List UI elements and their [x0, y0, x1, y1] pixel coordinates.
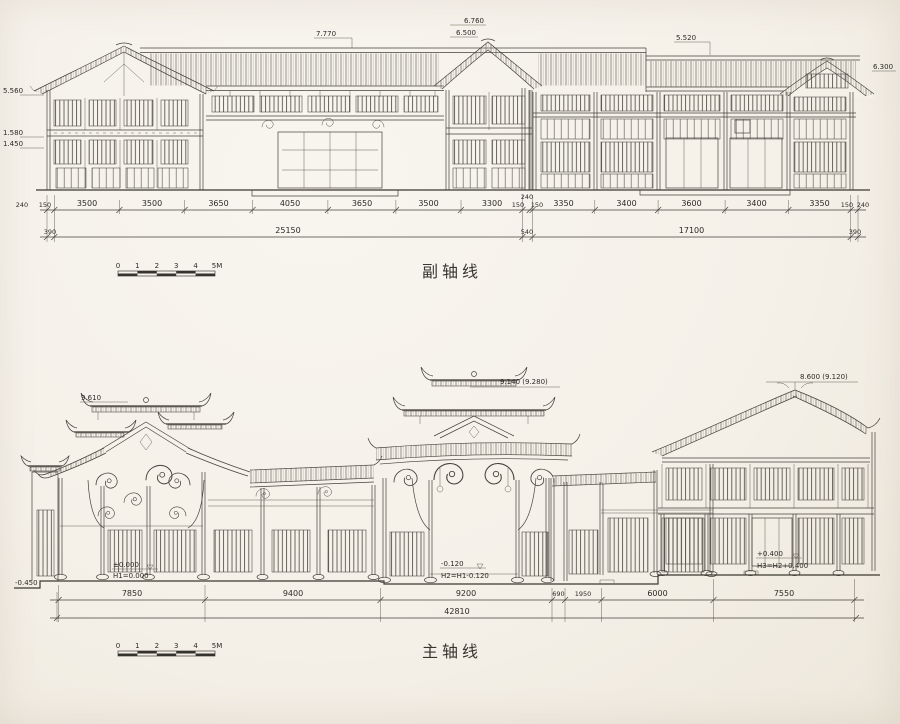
dim-label: 3400: [616, 199, 636, 208]
dim-label: 6000: [647, 589, 667, 598]
bottom-elevation-linework: [14, 367, 880, 588]
scale-label: 2: [155, 642, 159, 650]
dim-label: 17100: [679, 226, 704, 235]
top-drawing-title: 副轴线: [422, 263, 482, 281]
scale-label: 3: [174, 642, 178, 650]
scale-label: 0: [116, 642, 120, 650]
bottom-section-drawing: 9.610 9.140 (9.280) 8.600 (9.120) -0.450…: [0, 360, 900, 724]
dim-label: 25150: [275, 226, 300, 235]
dim-label: 3300: [482, 199, 502, 208]
scale-label: 5M: [212, 642, 223, 650]
dim-label: 150: [841, 201, 853, 209]
top-dimension-chain: 240 150 3500 3500 3650 4050 3650 3500 33…: [16, 193, 869, 242]
scale-label: 1: [135, 262, 139, 270]
elevation-mark: 7.770: [316, 30, 336, 38]
dim-label-total: 42810: [444, 607, 469, 616]
scale-label: 4: [193, 642, 198, 650]
dim-label: 3650: [352, 199, 372, 208]
dim-label: 3350: [553, 199, 573, 208]
elevation-mark: 5.520: [676, 34, 696, 42]
elevation-mark: 1.450: [3, 140, 23, 148]
dim-label: 690: [552, 590, 564, 598]
blueprint-sheet: 5.560 1.580 1.450 7.770 6.760 6.500 5.52…: [0, 0, 900, 724]
top-elevation-linework: [30, 39, 874, 196]
ground-note: H3=H2+0.400: [757, 562, 808, 570]
ground-elevation-mark: -0.120: [441, 560, 464, 568]
ground-note: H1=0.000: [113, 572, 149, 580]
dim-label: 540: [521, 228, 533, 236]
dim-label: 7850: [122, 589, 142, 598]
dim-label: 150: [531, 201, 543, 209]
dim-label: 1950: [575, 590, 592, 598]
dim-label: 7550: [774, 589, 794, 598]
dim-label: 9200: [456, 589, 476, 598]
bottom-dimension-chain: 7850 9400 9200 690 1950 6000 7550 42810: [50, 579, 864, 622]
dim-label: 3500: [418, 199, 438, 208]
ground-note: H2=H1-0.120: [441, 572, 489, 580]
dim-label: 3350: [809, 199, 829, 208]
ground-elevation-mark: -0.450: [15, 579, 38, 587]
elevation-mark: 1.580: [3, 129, 23, 137]
scale-label: 0: [116, 262, 120, 270]
dim-label: 3500: [77, 199, 97, 208]
dim-label: 390: [44, 228, 56, 236]
scale-label: 3: [174, 262, 178, 270]
dim-label: 3650: [208, 199, 228, 208]
scale-label: 5M: [212, 262, 223, 270]
elevation-mark: 6.500: [456, 29, 476, 37]
elevation-mark: 8.600 (9.120): [800, 373, 848, 381]
dim-label: 4050: [280, 199, 300, 208]
bottom-scale-bar: 0 1 2 3 4 5M: [116, 642, 222, 656]
dim-label: 240: [857, 201, 869, 209]
top-section-drawing: 5.560 1.580 1.450 7.770 6.760 6.500 5.52…: [0, 0, 900, 300]
scale-label: 4: [193, 262, 198, 270]
elevation-mark: 5.560: [3, 87, 23, 95]
dim-label: 240: [521, 193, 533, 201]
elevation-mark: 9.140 (9.280): [500, 378, 548, 386]
dim-label: 3500: [142, 199, 162, 208]
elevation-mark: 9.610: [81, 394, 101, 402]
elevation-mark: 6.760: [464, 17, 484, 25]
scale-label: 1: [135, 642, 139, 650]
dim-label: 150: [39, 201, 51, 209]
ground-elevation-mark: +0.400: [757, 550, 783, 558]
top-scale-bar: 0 1 2 3 4 5M: [116, 262, 222, 276]
bottom-drawing-title: 主轴线: [422, 643, 482, 661]
ground-elevation-mark: ±0.000: [113, 561, 139, 569]
scale-label: 2: [155, 262, 159, 270]
elevation-mark: 6.300: [873, 63, 893, 71]
dim-label: 9400: [283, 589, 303, 598]
dim-label: 390: [849, 228, 861, 236]
dim-label: 3400: [746, 199, 766, 208]
dim-label: 150: [512, 201, 524, 209]
dim-label: 3600: [681, 199, 701, 208]
dim-label: 240: [16, 201, 28, 209]
